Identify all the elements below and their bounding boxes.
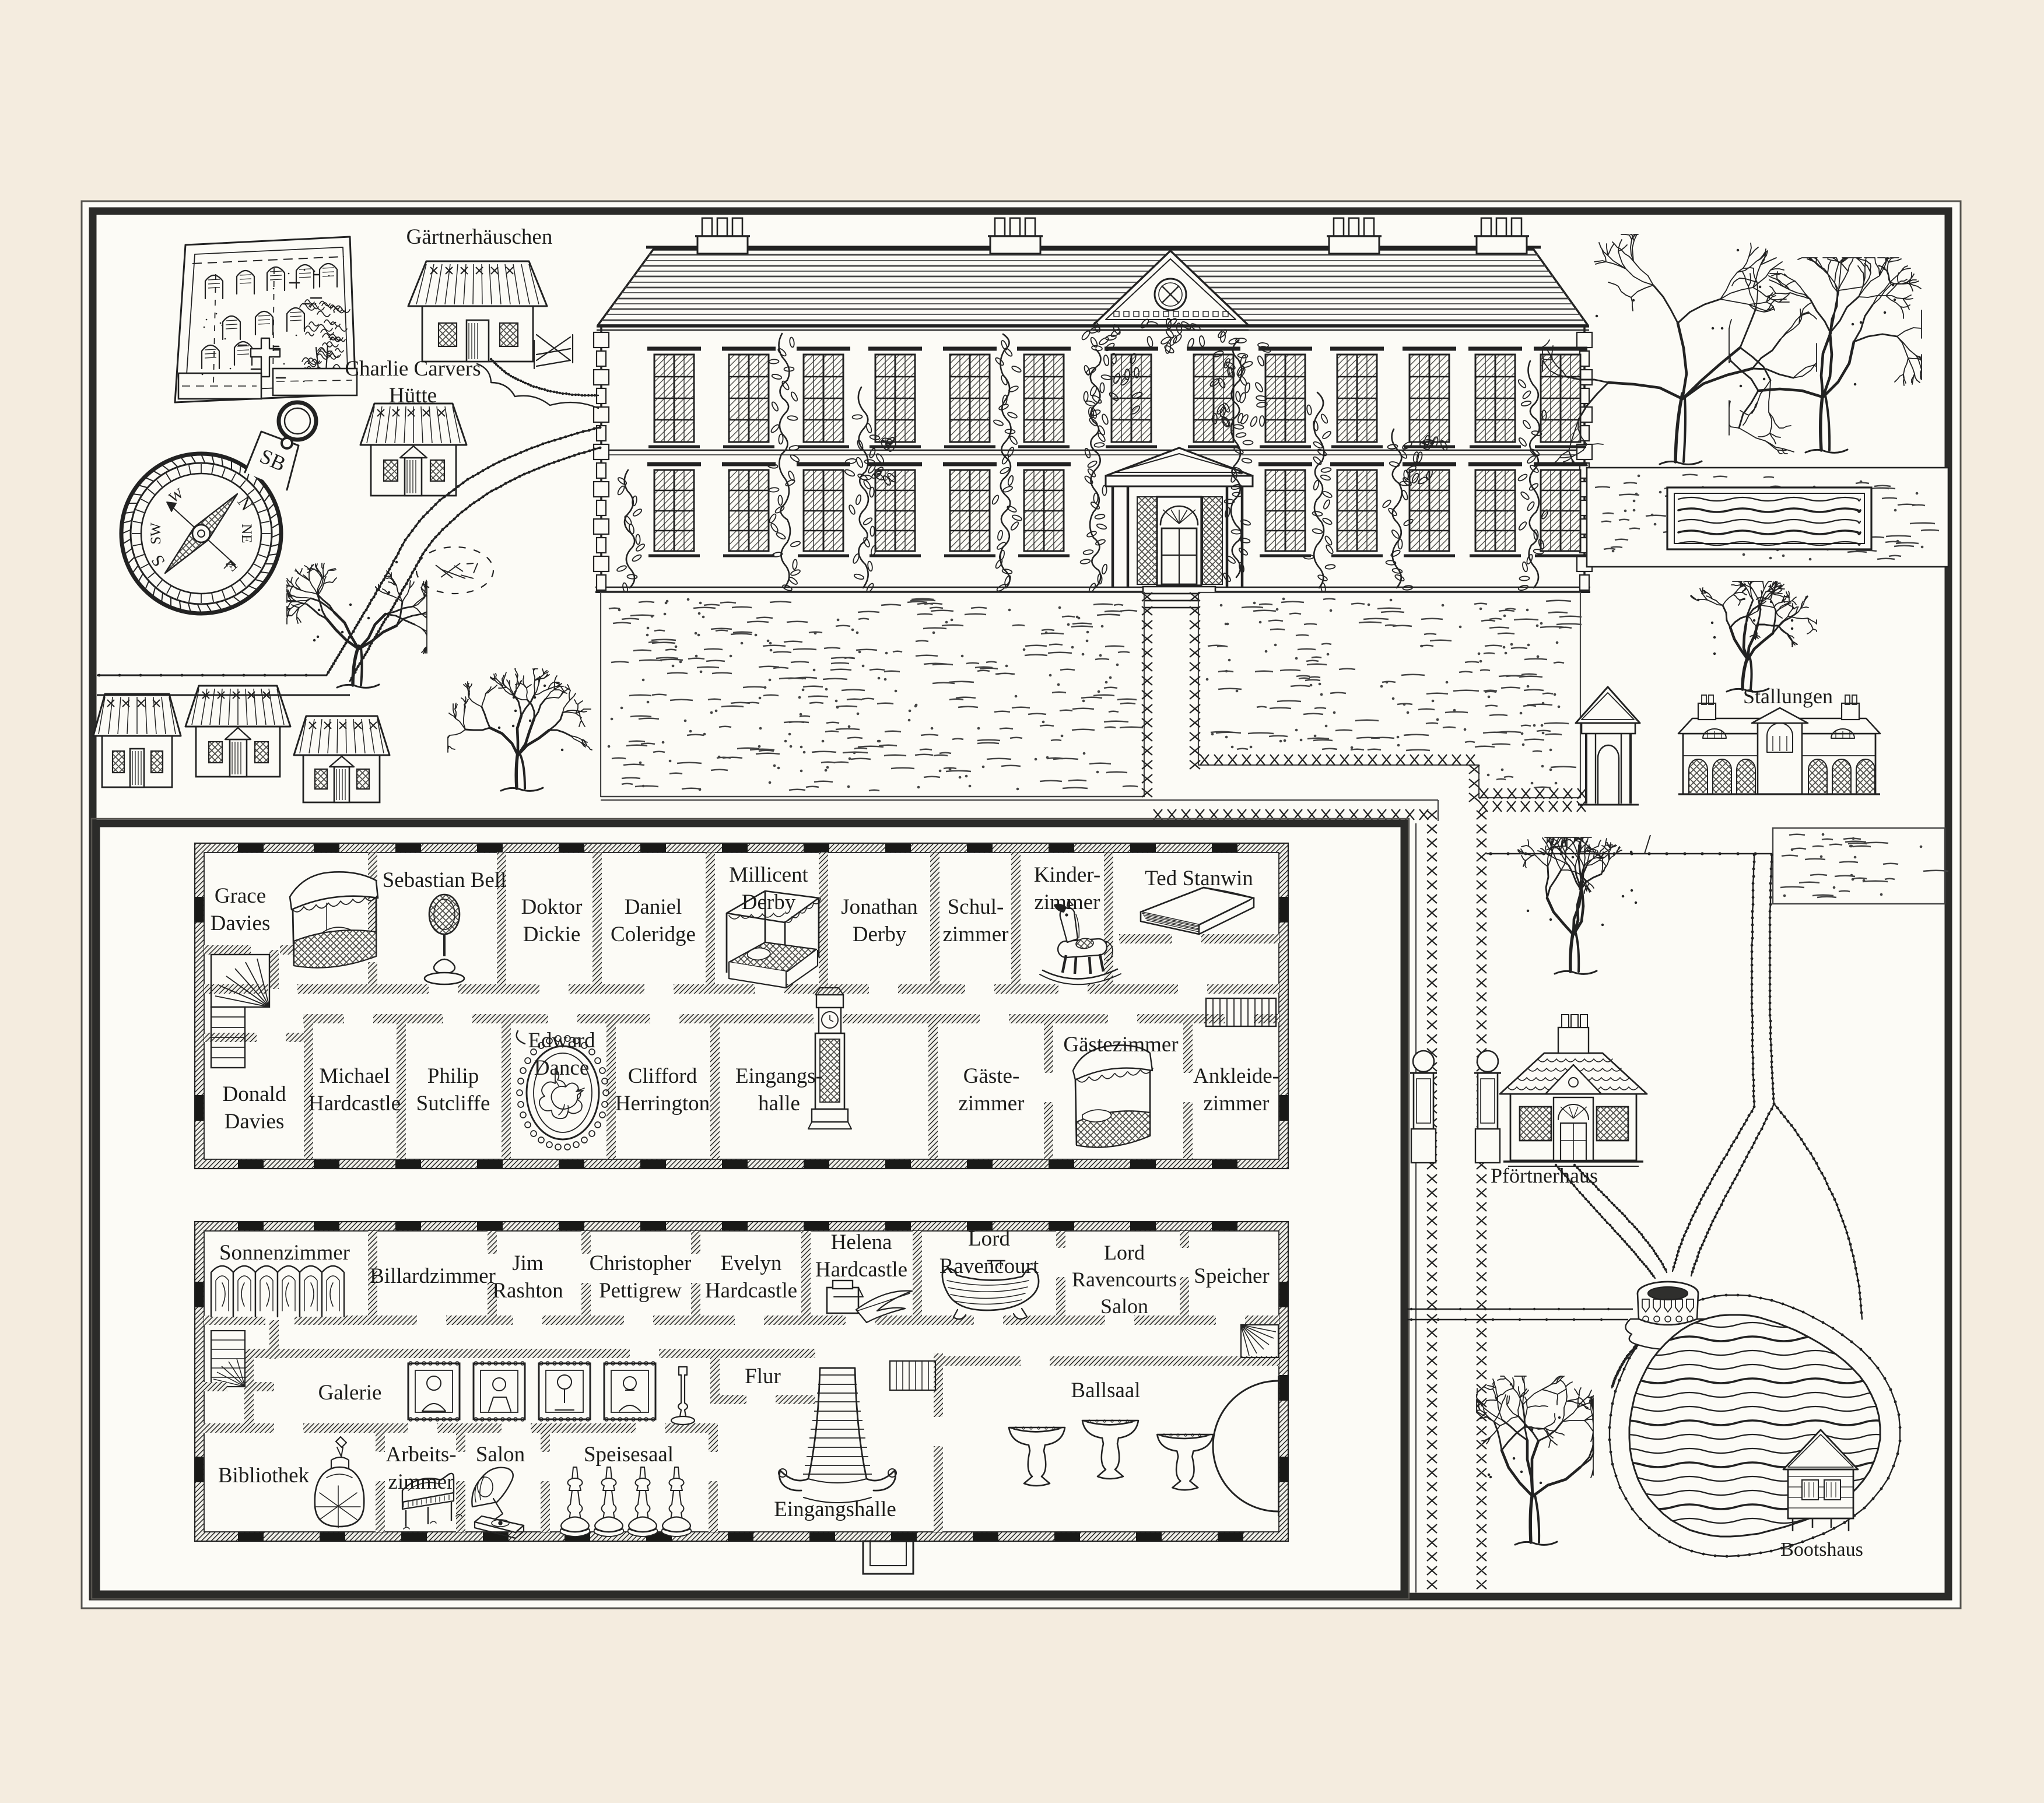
svg-text:Grace: Grace	[215, 884, 266, 908]
svg-text:Lord: Lord	[968, 1227, 1010, 1251]
svg-text:SW: SW	[148, 522, 164, 545]
svg-text:zimmer: zimmer	[1203, 1092, 1269, 1116]
svg-text:Hardcastle: Hardcastle	[705, 1279, 797, 1303]
svg-text:Donald: Donald	[223, 1082, 286, 1106]
svg-text:Arbeits-: Arbeits-	[385, 1443, 456, 1467]
svg-text:Sebastian Bell: Sebastian Bell	[383, 868, 507, 892]
svg-text:zimmer: zimmer	[388, 1470, 454, 1494]
svg-text:Billardzimmer: Billardzimmer	[370, 1264, 496, 1288]
svg-text:Speisesaal: Speisesaal	[584, 1443, 674, 1467]
svg-text:Sutcliffe: Sutcliffe	[416, 1092, 490, 1116]
svg-text:Bibliothek: Bibliothek	[218, 1464, 310, 1488]
svg-text:Philip: Philip	[427, 1064, 479, 1088]
svg-text:halle: halle	[758, 1092, 800, 1116]
svg-text:zimmer: zimmer	[958, 1092, 1024, 1116]
svg-text:Doktor: Doktor	[521, 895, 583, 919]
svg-text:Edward: Edward	[528, 1029, 595, 1053]
svg-text:Michael: Michael	[319, 1064, 390, 1088]
svg-text:Christopher: Christopher	[590, 1251, 692, 1275]
svg-text:Derby: Derby	[742, 890, 796, 914]
svg-text:Ravencourts: Ravencourts	[1072, 1268, 1177, 1291]
svg-text:Hütte: Hütte	[389, 384, 437, 408]
svg-text:Charlie Carvers: Charlie Carvers	[345, 357, 481, 381]
svg-text:NE: NE	[239, 524, 254, 543]
svg-text:Pettigrew: Pettigrew	[599, 1279, 682, 1303]
svg-text:Jim: Jim	[512, 1251, 544, 1275]
svg-text:Davies: Davies	[225, 1110, 285, 1134]
svg-text:Helena: Helena	[831, 1230, 892, 1254]
svg-text:Jonathan: Jonathan	[841, 895, 918, 919]
svg-text:Derby: Derby	[853, 922, 907, 946]
svg-text:Salon: Salon	[476, 1443, 525, 1467]
svg-text:Eingangs-: Eingangs-	[735, 1064, 823, 1088]
svg-text:Gäste-: Gäste-	[963, 1064, 1020, 1088]
svg-text:Stallungen: Stallungen	[1743, 685, 1833, 708]
svg-text:Gästezimmer: Gästezimmer	[1063, 1033, 1178, 1057]
svg-text:Ted Stanwin: Ted Stanwin	[1145, 867, 1253, 890]
svg-text:Hardcastle: Hardcastle	[815, 1258, 907, 1282]
svg-text:Millicent: Millicent	[729, 863, 808, 887]
svg-text:Kinder-: Kinder-	[1034, 863, 1100, 887]
svg-text:Daniel: Daniel	[625, 895, 682, 919]
svg-text:Flur: Flur	[745, 1364, 781, 1388]
svg-text:Coleridge: Coleridge	[611, 922, 696, 946]
svg-text:Gärtnerhäuschen: Gärtnerhäuschen	[406, 225, 553, 249]
svg-text:Speicher: Speicher	[1194, 1264, 1269, 1288]
svg-text:Evelyn: Evelyn	[721, 1251, 782, 1275]
svg-text:zimmer: zimmer	[1034, 890, 1100, 914]
svg-text:Ankleide-: Ankleide-	[1193, 1064, 1279, 1088]
svg-text:Schul-: Schul-	[948, 895, 1004, 919]
svg-text:Herrington: Herrington	[615, 1092, 710, 1116]
svg-text:Hardcastle: Hardcastle	[308, 1092, 401, 1116]
svg-text:Ravencourt: Ravencourt	[939, 1254, 1039, 1278]
svg-text:Ballsaal: Ballsaal	[1071, 1378, 1140, 1402]
svg-text:Eingangshalle: Eingangshalle	[774, 1497, 896, 1521]
svg-text:Dickie: Dickie	[523, 922, 581, 946]
svg-text:Pförtnerhaus: Pförtnerhaus	[1491, 1164, 1598, 1187]
svg-text:Clifford: Clifford	[628, 1064, 697, 1088]
svg-text:Dance: Dance	[534, 1056, 590, 1080]
svg-text:zimmer: zimmer	[942, 922, 1008, 946]
svg-text:Sonnenzimmer: Sonnenzimmer	[219, 1241, 350, 1265]
svg-text:Bootshaus: Bootshaus	[1780, 1539, 1863, 1560]
svg-text:Salon: Salon	[1100, 1295, 1148, 1318]
svg-text:Davies: Davies	[211, 911, 271, 935]
svg-text:Rashton: Rashton	[492, 1279, 563, 1303]
svg-text:Lord: Lord	[1104, 1241, 1145, 1264]
svg-text:Galerie: Galerie	[318, 1381, 382, 1405]
